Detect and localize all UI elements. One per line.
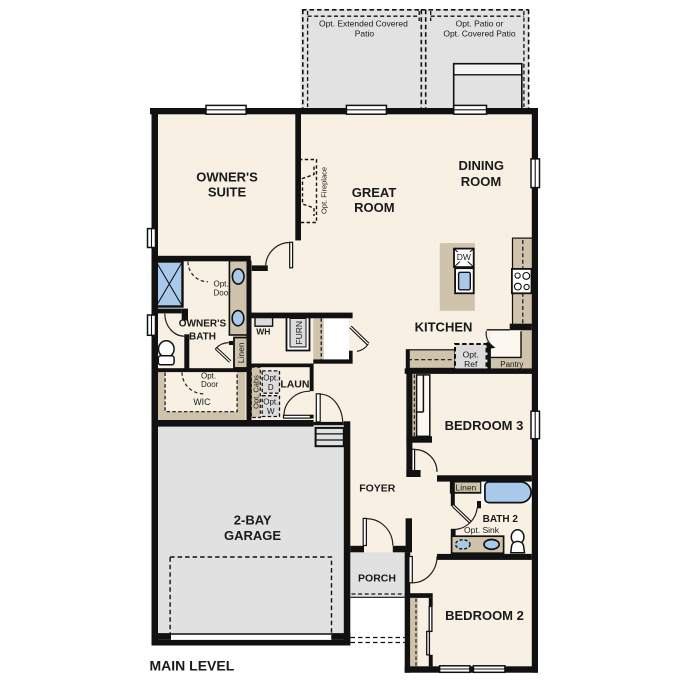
svg-text:Door: Door [214,289,232,298]
svg-text:BATH: BATH [189,332,216,343]
svg-text:Linen: Linen [455,482,476,492]
svg-text:Opt. Fireplace: Opt. Fireplace [319,167,328,214]
svg-text:SUITE: SUITE [208,185,247,200]
svg-text:GARAGE: GARAGE [224,528,281,543]
svg-text:Opt. Covered Patio: Opt. Covered Patio [443,29,516,39]
svg-text:W: W [267,407,275,416]
svg-text:FURN: FURN [294,321,304,345]
svg-text:Ref: Ref [464,359,478,369]
svg-text:DW: DW [457,252,471,262]
svg-text:BEDROOM 2: BEDROOM 2 [445,608,524,623]
svg-text:Linen: Linen [236,342,246,363]
svg-text:D: D [268,383,274,392]
svg-text:Pantry: Pantry [500,360,523,369]
svg-text:OWNER'S: OWNER'S [196,169,258,184]
svg-text:BEDROOM 3: BEDROOM 3 [445,418,524,433]
svg-text:ROOM: ROOM [354,200,394,215]
svg-text:PORCH: PORCH [358,573,396,585]
svg-text:Opt.: Opt. [263,398,278,407]
svg-text:DINING: DINING [459,158,505,173]
svg-text:Opt.: Opt. [463,350,479,360]
svg-text:Opt. Extended Covered: Opt. Extended Covered [319,19,408,29]
svg-text:Patio: Patio [355,29,375,39]
svg-text:FOYER: FOYER [359,482,396,494]
svg-text:Opt. Cabs: Opt. Cabs [252,375,261,409]
svg-text:Door: Door [201,380,219,389]
svg-text:MAIN LEVEL: MAIN LEVEL [150,658,235,674]
svg-text:WH: WH [256,327,270,337]
svg-text:BATH 2: BATH 2 [483,514,519,525]
svg-text:OWNER'S: OWNER'S [179,319,227,330]
svg-text:ROOM: ROOM [461,174,501,189]
svg-text:WIC: WIC [193,397,211,407]
svg-text:LAUN: LAUN [280,378,309,390]
svg-text:GREAT: GREAT [352,185,397,200]
svg-text:Opt.: Opt. [263,374,278,383]
svg-text:2-BAY: 2-BAY [234,513,272,528]
svg-text:Opt. Sink: Opt. Sink [464,525,500,535]
svg-text:KITCHEN: KITCHEN [415,320,473,335]
svg-text:Opt.: Opt. [214,280,229,289]
svg-text:Opt. Patio or: Opt. Patio or [456,19,504,29]
